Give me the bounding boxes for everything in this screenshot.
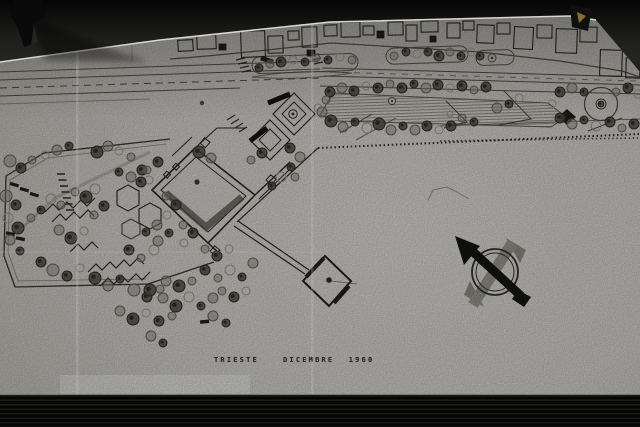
paper-clamp-icon — [570, 5, 592, 31]
caption-date: DICEMBRE 1960 — [283, 356, 374, 364]
photo-frame: TRIESTE DICEMBRE 1960 — [0, 0, 640, 427]
caption-city: TRIESTE — [214, 356, 259, 364]
table-surface-band — [0, 394, 640, 427]
